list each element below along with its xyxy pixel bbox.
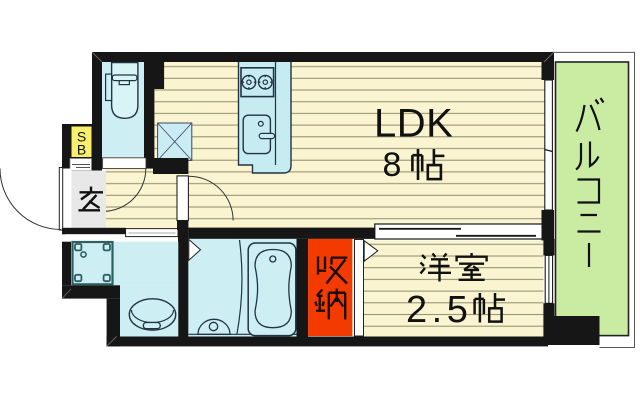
svg-text:B: B bbox=[77, 142, 86, 158]
svg-text:8: 8 bbox=[383, 146, 402, 184]
svg-text:LDK: LDK bbox=[374, 102, 453, 146]
svg-text:2.5: 2.5 bbox=[406, 289, 472, 331]
